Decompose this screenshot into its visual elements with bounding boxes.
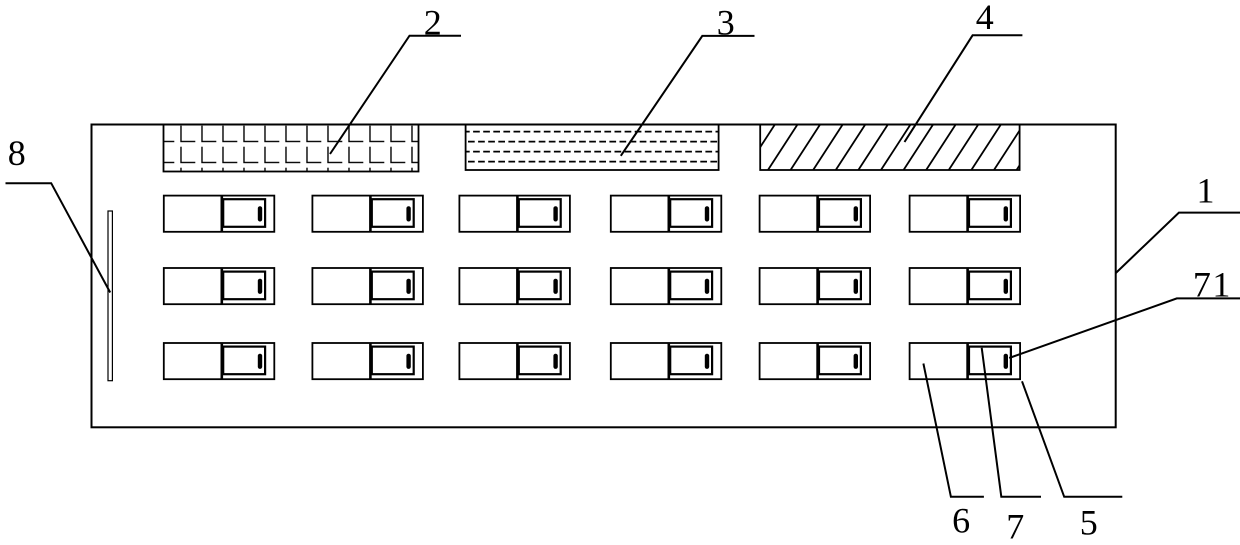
svg-text:5: 5	[1080, 503, 1098, 543]
svg-text:71: 71	[1193, 264, 1232, 304]
svg-text:4: 4	[976, 0, 994, 37]
svg-text:1: 1	[1197, 170, 1215, 210]
svg-text:2: 2	[424, 3, 442, 43]
svg-text:7: 7	[1006, 506, 1024, 545]
svg-text:8: 8	[8, 133, 26, 173]
svg-text:3: 3	[717, 3, 735, 43]
svg-text:6: 6	[952, 501, 970, 541]
